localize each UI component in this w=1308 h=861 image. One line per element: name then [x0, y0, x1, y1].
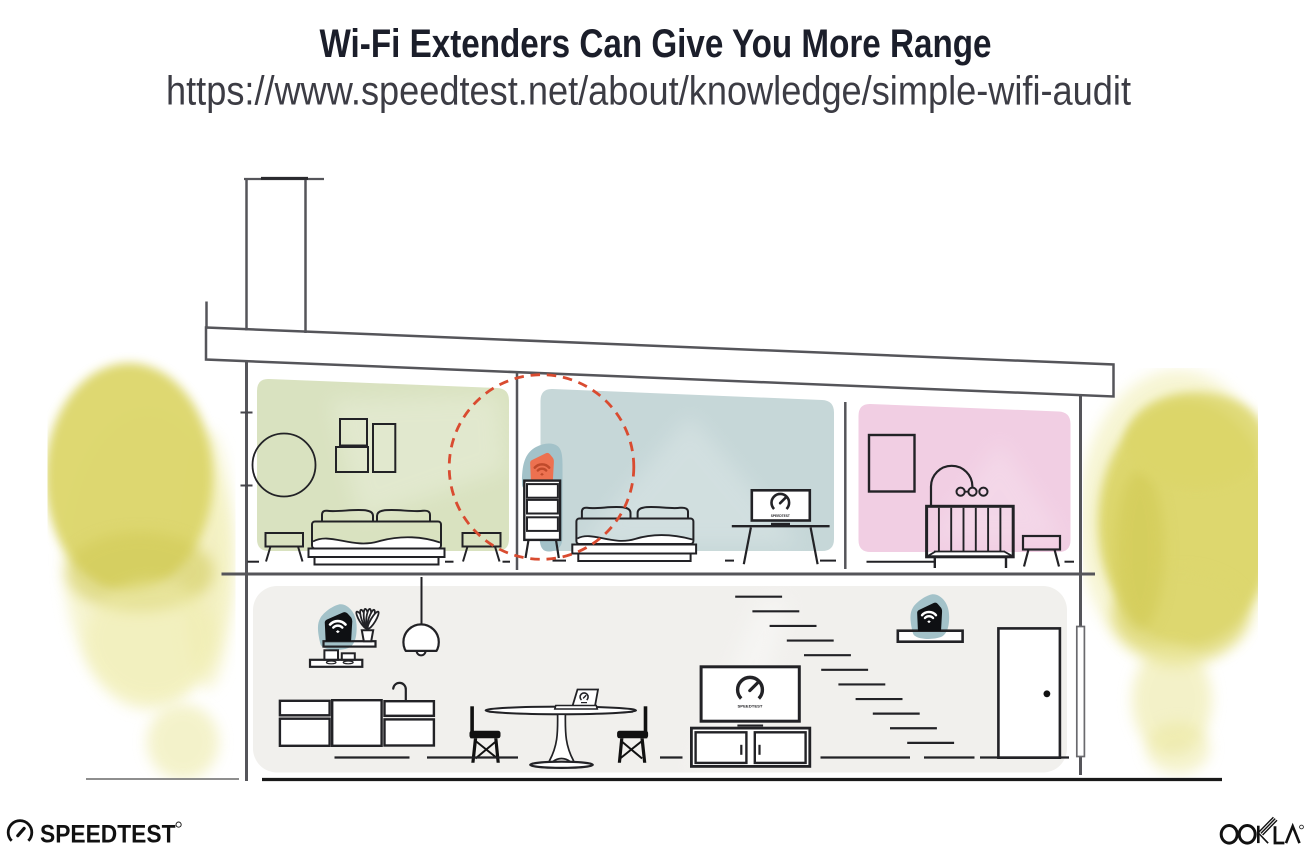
- svg-text:Wi-Fi Extenders Can Give You M: Wi-Fi Extenders Can Give You More Range: [320, 22, 992, 66]
- svg-text:SPEEDTEST: SPEEDTEST: [771, 514, 790, 518]
- svg-text:SPEEDTEST: SPEEDTEST: [738, 705, 764, 709]
- svg-text:SPEEDTEST: SPEEDTEST: [40, 821, 176, 849]
- svg-text:https://www.speedtest.net/abou: https://www.speedtest.net/about/knowledg…: [166, 67, 1132, 113]
